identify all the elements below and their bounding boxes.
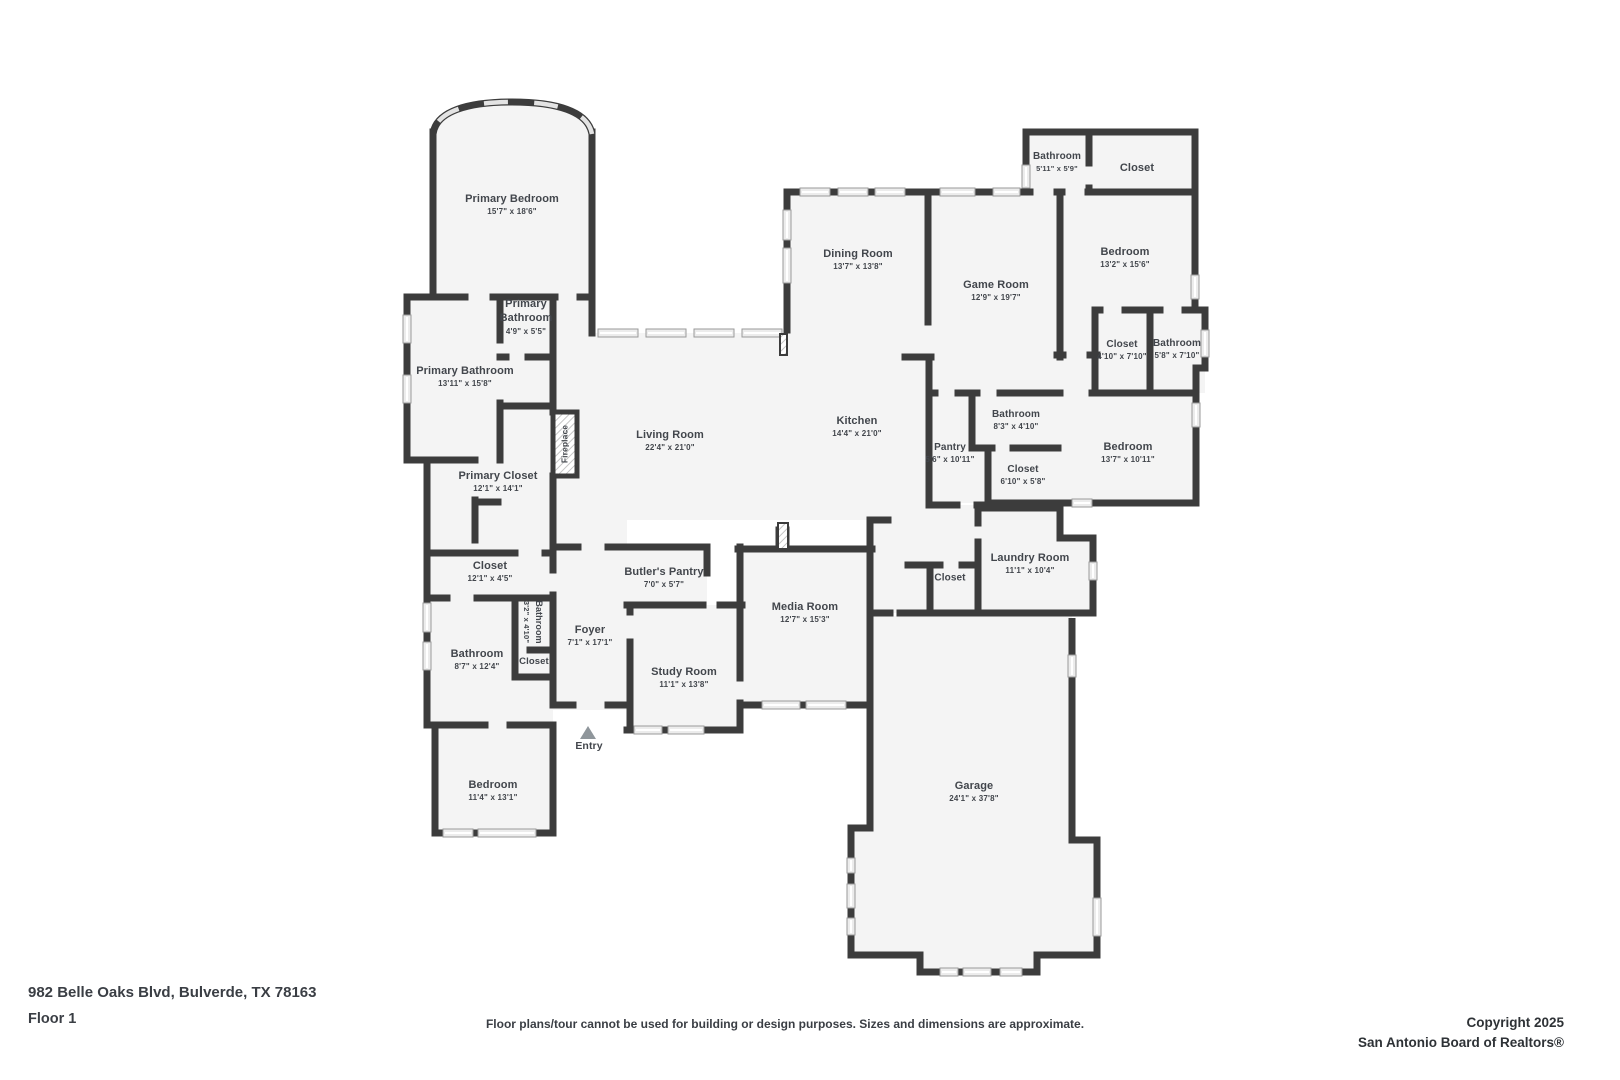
copyright-line1: Copyright 2025 [1466,1015,1564,1030]
floor-plan-drawing [0,0,1620,1080]
floor-plan-page: Primary Bedroom15'7" x 18'6"Primary Bath… [0,0,1620,1080]
entry-triangle-icon [580,726,596,739]
floor-label: Floor 1 [28,1011,76,1027]
copyright-text: Copyright 2025 San Antonio Board of Real… [1358,1013,1564,1052]
fireplace-symbol [553,412,577,476]
disclaimer-text: Floor plans/tour cannot be used for buil… [486,1017,1084,1031]
address-text: 982 Belle Oaks Blvd, Bulverde, TX 78163 [28,984,317,1001]
copyright-line2: San Antonio Board of Realtors® [1358,1035,1564,1050]
